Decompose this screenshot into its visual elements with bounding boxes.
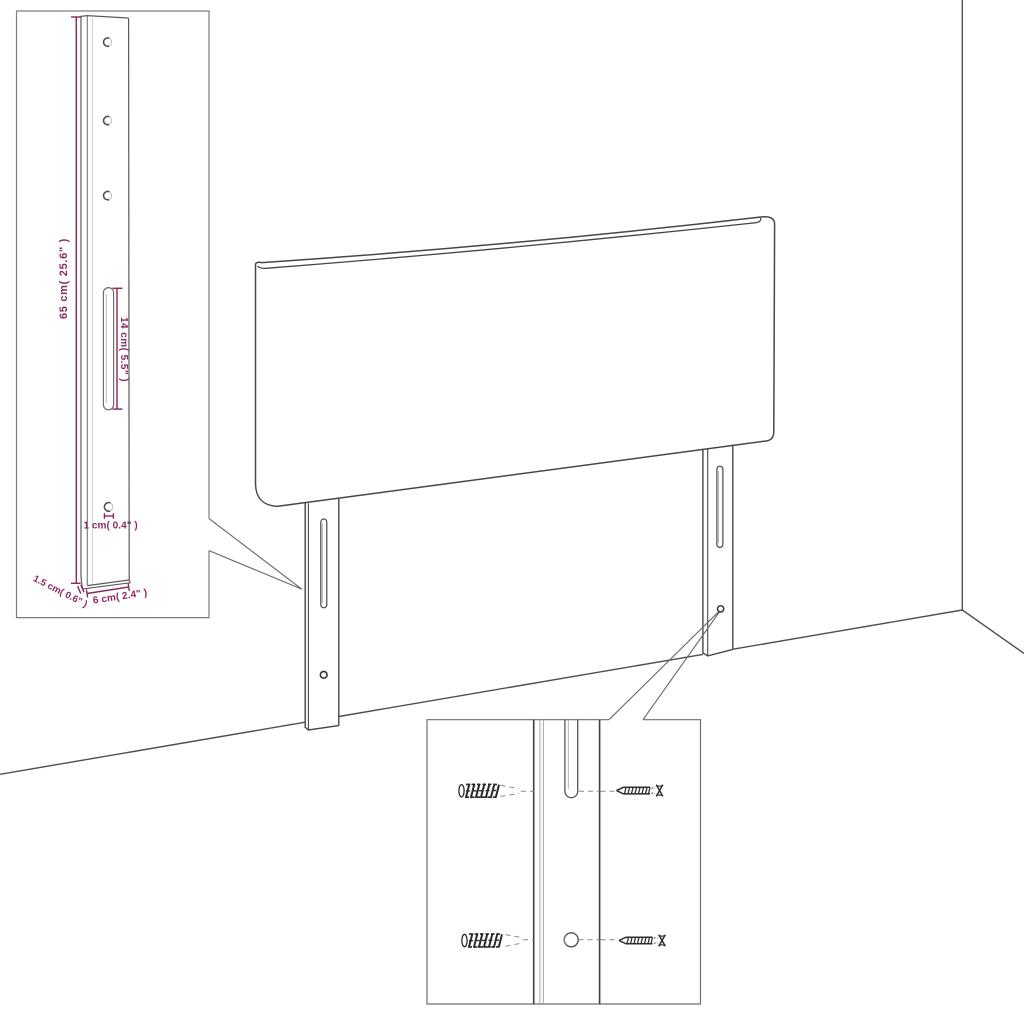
svg-text:1 cm( 0.4" ): 1 cm( 0.4" ) <box>83 521 137 532</box>
svg-text:65 cm( 25.6" ): 65 cm( 25.6" ) <box>58 238 70 319</box>
svg-text:14 cm( 5.5" ): 14 cm( 5.5" ) <box>118 317 129 382</box>
